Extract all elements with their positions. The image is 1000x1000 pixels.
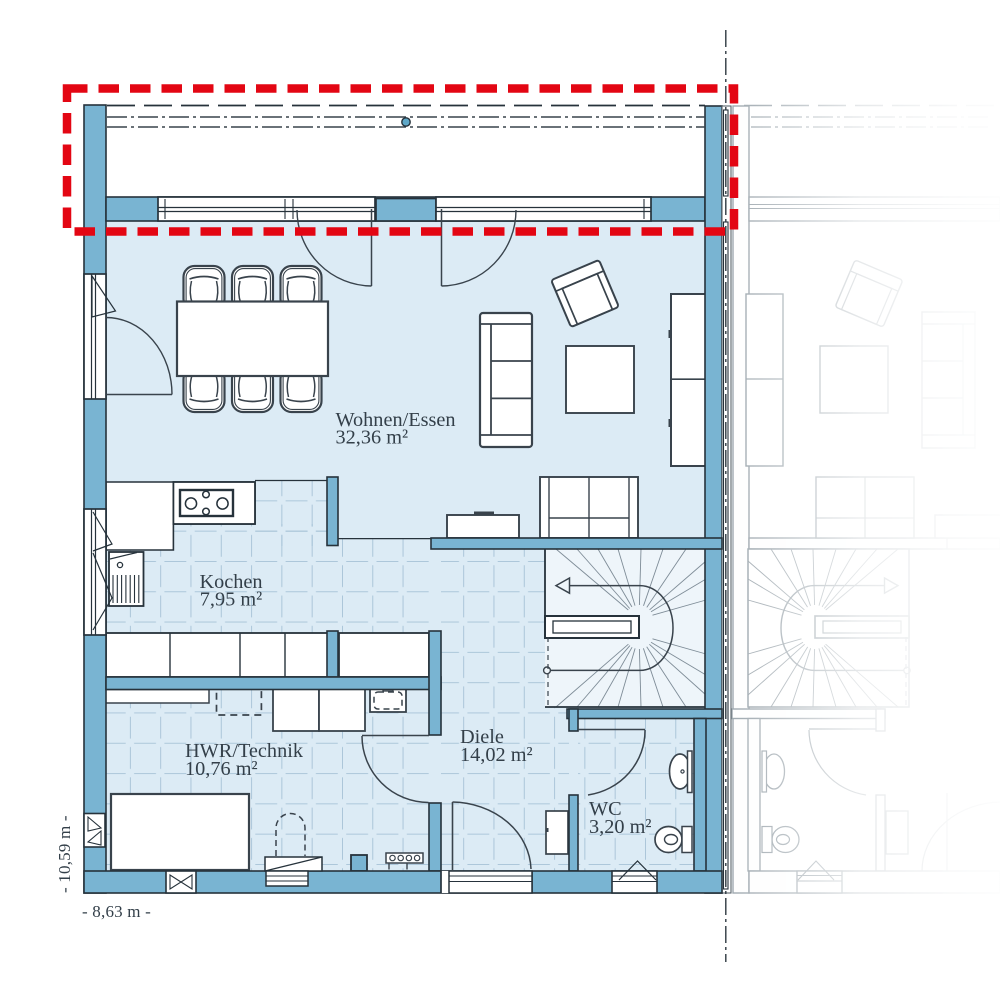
svg-text:7,95 m²: 7,95 m² <box>200 589 262 611</box>
svg-text:- 8,63 m -: - 8,63 m - <box>82 902 151 921</box>
svg-text:32,36 m²: 32,36 m² <box>336 427 409 449</box>
svg-text:3,20 m²: 3,20 m² <box>589 816 651 838</box>
svg-text:- 10,59 m -: - 10,59 m - <box>55 815 74 893</box>
svg-text:10,76 m²: 10,76 m² <box>185 758 258 780</box>
svg-text:14,02 m²: 14,02 m² <box>460 744 533 766</box>
